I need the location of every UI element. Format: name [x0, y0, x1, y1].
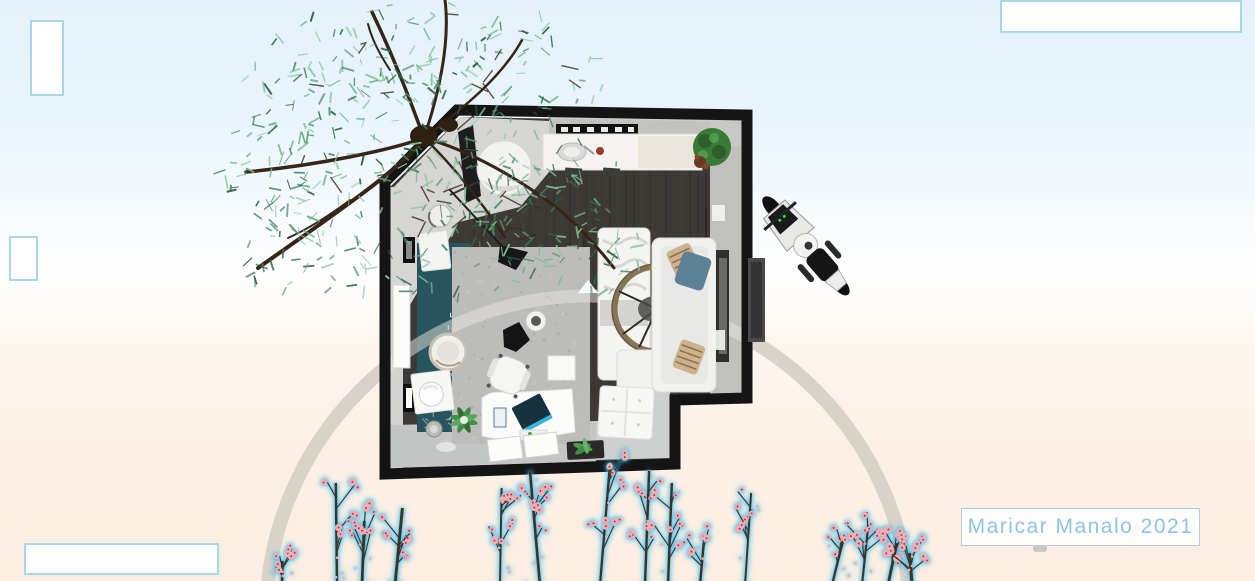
tufted-ottoman[interactable] [598, 386, 655, 440]
text-field-bottom-left[interactable] [24, 543, 219, 575]
selection-box-top-left[interactable] [30, 20, 64, 96]
design-canvas: Maricar Manalo 2021 [0, 0, 1255, 581]
wall-panel-tv[interactable] [748, 258, 765, 342]
floor-plan-scene [0, 0, 1255, 581]
small-rug [436, 442, 456, 452]
selection-box-left[interactable] [9, 236, 38, 281]
coffee-table[interactable] [548, 356, 575, 380]
dresser-with-mirror[interactable] [411, 370, 455, 414]
text-field-top-right[interactable] [1000, 0, 1242, 33]
terrace-window[interactable] [487, 436, 523, 462]
entry-cabinet[interactable] [418, 231, 451, 272]
window-left[interactable] [393, 285, 410, 368]
motorcycle[interactable] [748, 183, 864, 308]
apartment-floor-plan[interactable] [266, 110, 910, 581]
terrace-window-2[interactable] [523, 432, 559, 458]
coffee-maker [596, 147, 604, 155]
watermark-label[interactable]: Maricar Manalo 2021 [961, 508, 1200, 546]
smudge-mark [1033, 545, 1047, 552]
book [494, 408, 506, 427]
desk[interactable] [482, 389, 575, 440]
watermark-text: Maricar Manalo 2021 [968, 515, 1194, 539]
papasan-chair[interactable] [430, 334, 466, 370]
bar-stool-2[interactable] [603, 167, 621, 176]
